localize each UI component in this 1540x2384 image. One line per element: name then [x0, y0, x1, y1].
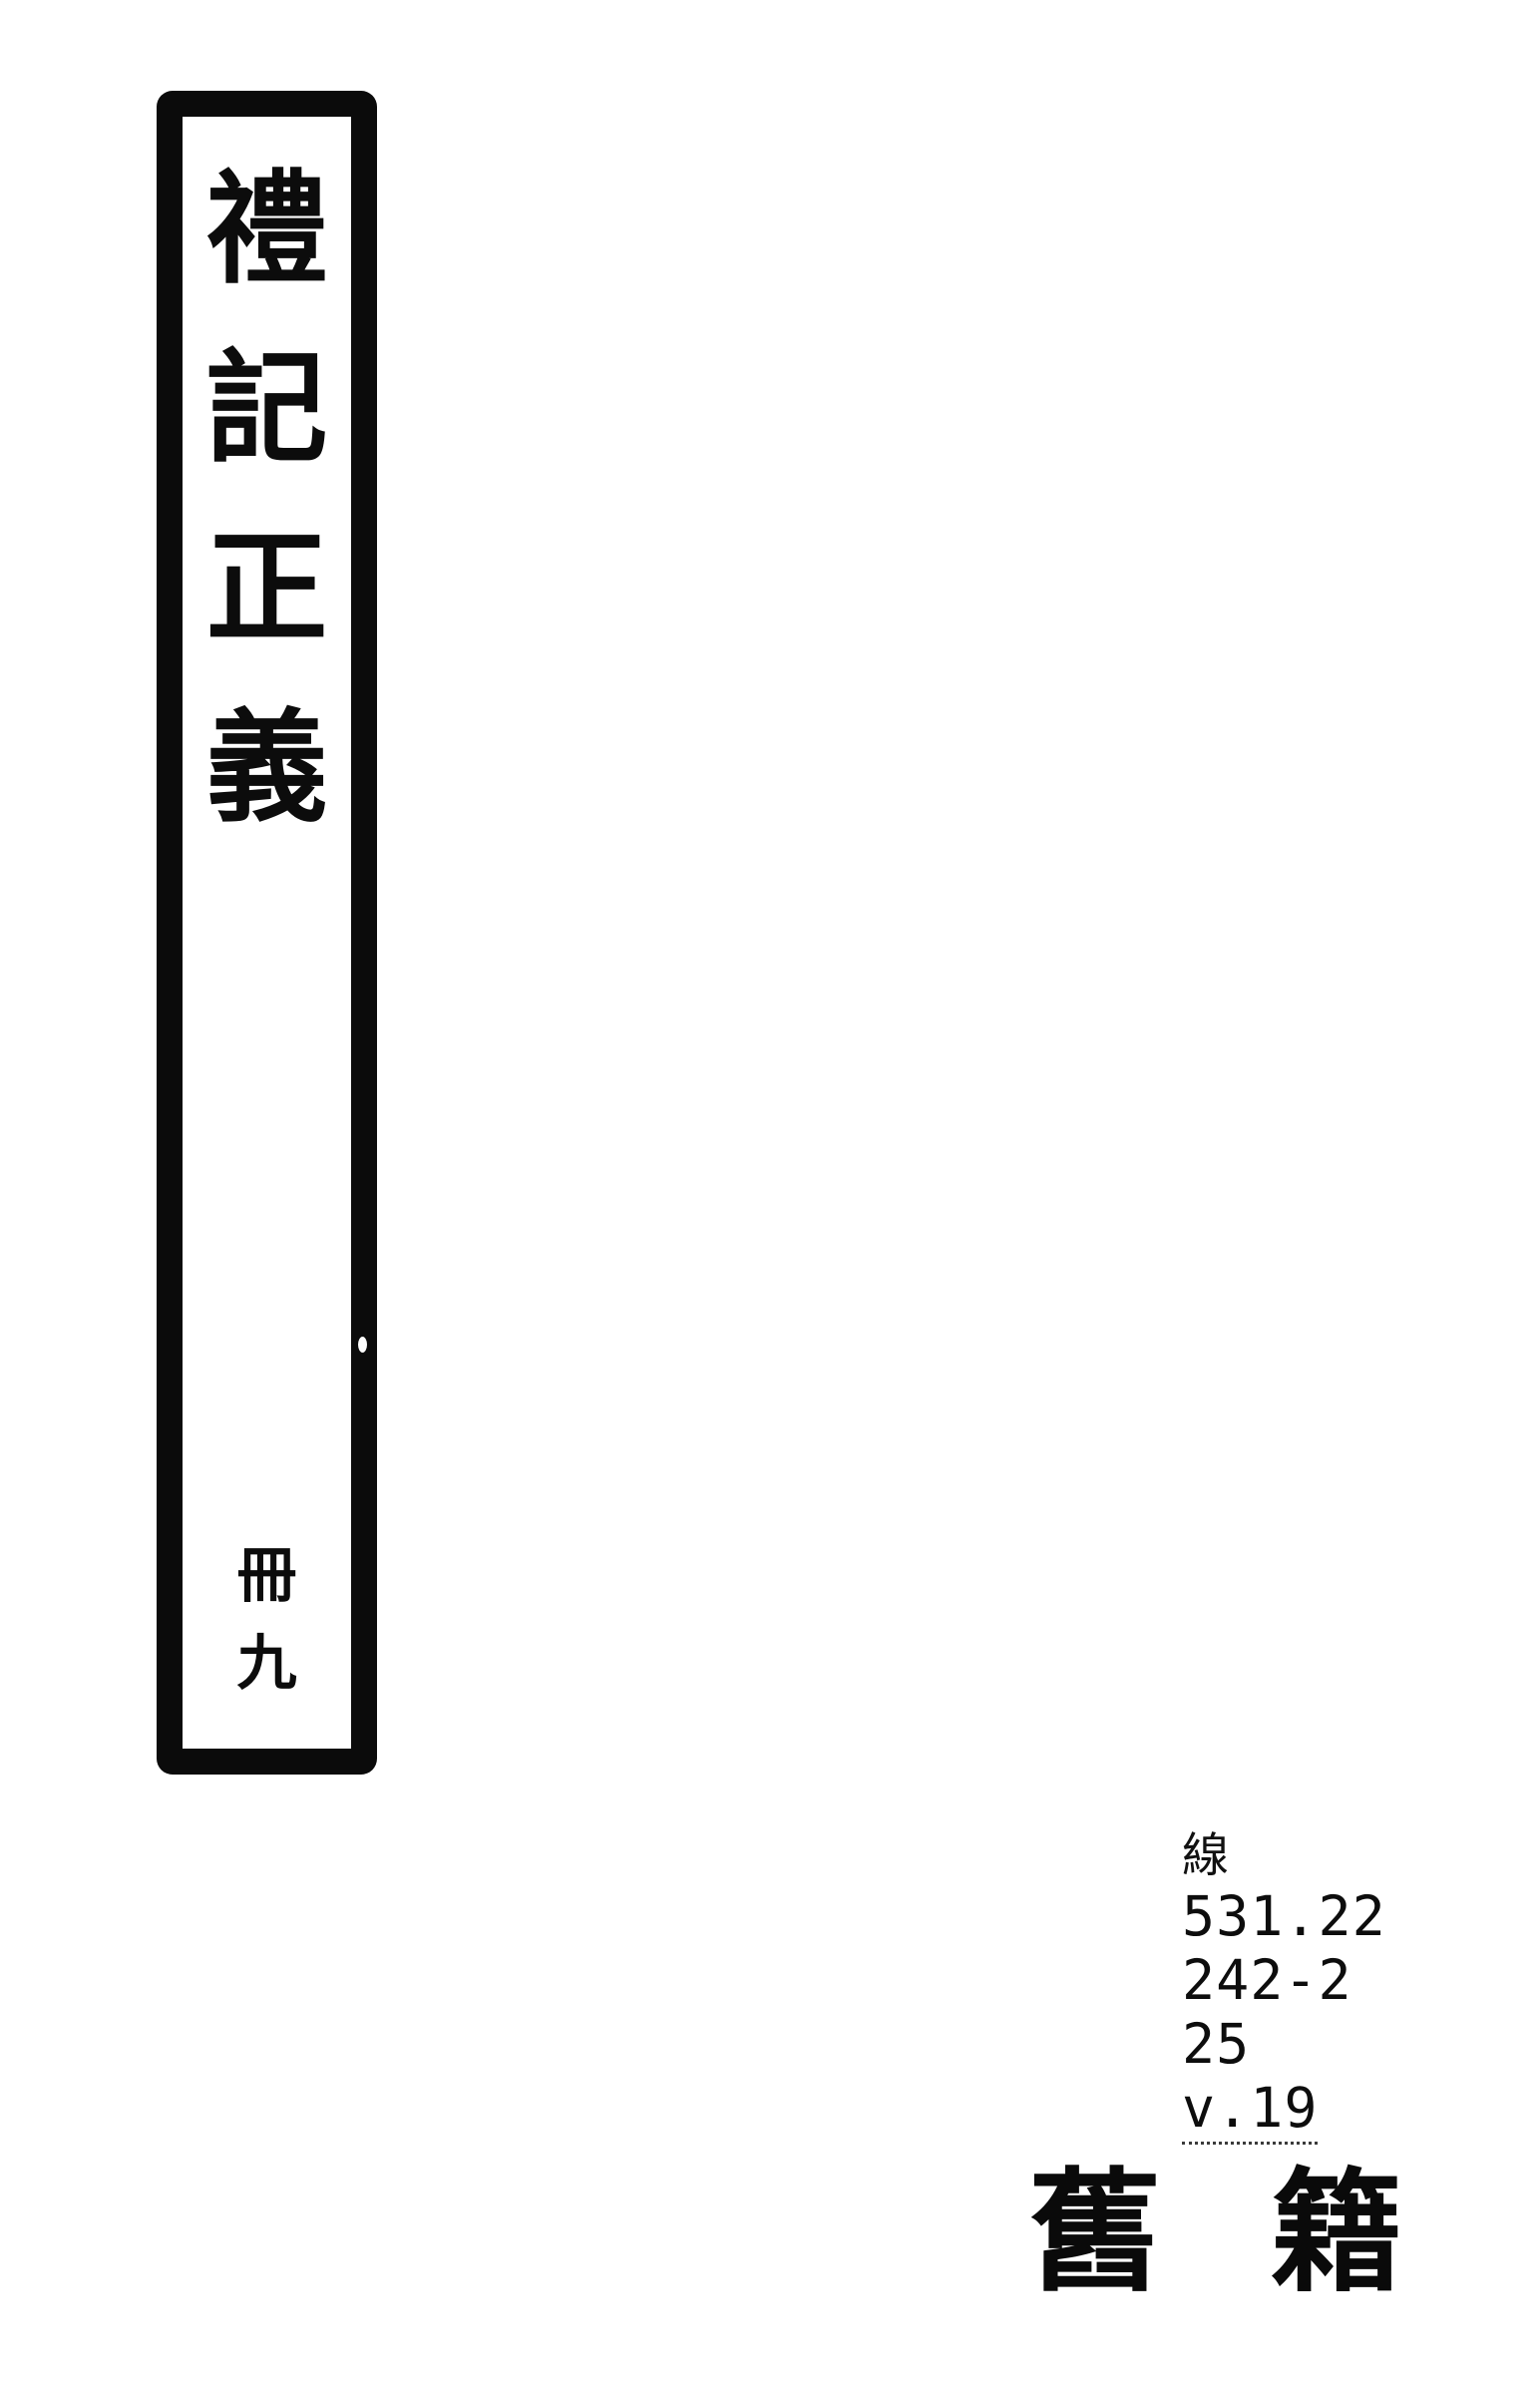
scan-artifact: [358, 1337, 367, 1353]
book-spine-scan: 禮 記 正 義 冊 九 線 531.22 242-2 25 v.19 舊 籍: [0, 0, 1540, 2384]
call-number-line: 531.22: [1182, 1884, 1386, 1948]
spine-title-char: 正: [183, 498, 351, 677]
spine-volume-label: 冊 九: [183, 1532, 351, 1708]
stamp-char: 舊: [1028, 2158, 1161, 2307]
call-number-block: 線 531.22 242-2 25 v.19: [1182, 1828, 1386, 2145]
spine-title-char: 記: [183, 318, 351, 498]
call-number-volume-line: v.19: [1182, 2076, 1386, 2145]
old-books-stamp: 舊 籍: [1028, 2158, 1403, 2307]
spine-volume-char: 冊: [183, 1532, 351, 1620]
call-number-prefix: 線: [1182, 1828, 1386, 1884]
spine-volume-char: 九: [183, 1620, 351, 1708]
spine-title-char: 義: [183, 677, 351, 857]
call-number-line: 25: [1182, 2012, 1386, 2076]
spine-label-box: 禮 記 正 義 冊 九: [157, 91, 377, 1775]
spine-title: 禮 記 正 義: [183, 139, 351, 857]
stamp-char: 籍: [1271, 2158, 1403, 2307]
call-number-line: 242-2: [1182, 1948, 1386, 2012]
spine-title-char: 禮: [183, 139, 351, 318]
call-number-volume: v.19: [1182, 2076, 1318, 2145]
